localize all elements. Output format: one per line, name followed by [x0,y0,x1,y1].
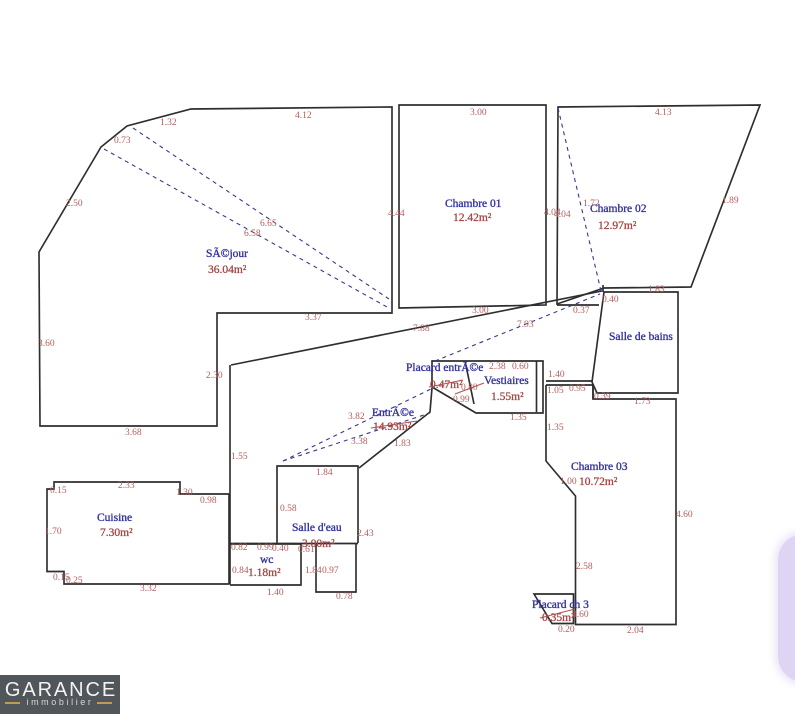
svg-text:1.84: 1.84 [316,468,333,478]
svg-text:4.04: 4.04 [554,210,571,220]
svg-text:1.55m²: 1.55m² [491,391,524,403]
svg-text:2.04: 2.04 [627,626,644,636]
svg-text:1.84: 1.84 [305,566,322,576]
svg-text:0.20: 0.20 [558,625,575,635]
svg-text:1.40: 1.40 [267,588,284,598]
svg-text:EntrÃ©e: EntrÃ©e [372,405,414,419]
svg-text:36.04m²: 36.04m² [208,264,247,276]
svg-text:3.00: 3.00 [470,108,487,118]
svg-text:Chambre 03: Chambre 03 [571,461,628,473]
svg-text:2.33: 2.33 [118,481,135,491]
svg-text:1.35: 1.35 [510,413,527,423]
svg-text:0.73: 0.73 [114,136,131,146]
svg-text:3.60: 3.60 [38,339,55,349]
svg-text:1.32: 1.32 [160,118,177,128]
svg-text:1.30: 1.30 [176,488,193,498]
svg-text:1.83: 1.83 [648,285,665,295]
svg-text:0.95: 0.95 [569,384,586,394]
svg-text:0.40: 0.40 [602,295,619,305]
svg-text:2.58: 2.58 [576,562,593,572]
svg-text:1.05: 1.05 [547,386,564,396]
svg-text:0.39: 0.39 [594,392,611,402]
svg-text:6.58: 6.58 [244,229,261,239]
svg-text:0.37: 0.37 [573,306,590,316]
svg-text:1.35: 1.35 [547,423,564,433]
svg-text:Cuisine: Cuisine [97,512,132,524]
svg-text:7.30m²: 7.30m² [100,527,133,539]
svg-text:1.55: 1.55 [231,452,248,462]
svg-text:0.61: 0.61 [298,545,315,555]
svg-text:12.97m²: 12.97m² [598,220,637,232]
svg-text:0.98: 0.98 [200,496,217,506]
svg-text:Salle d'eau: Salle d'eau [292,522,342,534]
svg-text:2.30: 2.30 [206,371,223,381]
svg-text:6.65: 6.65 [260,219,277,229]
svg-text:4.44: 4.44 [388,209,405,219]
svg-text:0.40: 0.40 [272,544,289,554]
svg-text:3.38: 3.38 [351,437,368,447]
svg-text:Chambre 01: Chambre 01 [445,198,502,210]
svg-text:0.84: 0.84 [232,566,249,576]
svg-text:10.72m²: 10.72m² [579,476,618,488]
svg-text:Vestiaires: Vestiaires [484,375,529,387]
svg-text:0.60: 0.60 [572,610,589,620]
svg-text:2.38: 2.38 [489,362,506,372]
svg-text:1.73: 1.73 [634,397,651,407]
svg-text:1.89: 1.89 [722,196,739,206]
svg-text:1.72: 1.72 [583,199,600,209]
svg-text:0.99: 0.99 [453,395,470,405]
svg-text:SÃ©jour: SÃ©jour [206,246,248,260]
svg-text:4.60: 4.60 [676,510,693,520]
svg-text:3.37: 3.37 [305,313,322,323]
svg-text:1.40: 1.40 [548,370,565,380]
svg-text:1.00: 1.00 [560,477,577,487]
svg-text:3.82: 3.82 [348,412,365,422]
svg-text:0.97: 0.97 [322,566,339,576]
svg-text:3.68: 3.68 [125,428,142,438]
svg-text:0.78: 0.78 [336,592,353,602]
svg-text:2.43: 2.43 [357,529,374,539]
svg-text:3.32: 3.32 [140,584,157,594]
svg-text:Placard entrÃ©e: Placard entrÃ©e [406,360,483,374]
svg-text:3.00: 3.00 [472,306,489,316]
svg-text:1.18m²: 1.18m² [248,567,281,579]
svg-text:0.60: 0.60 [512,362,529,372]
svg-text:0.58: 0.58 [280,504,297,514]
svg-text:0.15: 0.15 [50,486,67,496]
svg-text:4.12: 4.12 [295,111,312,121]
svg-text:1.83: 1.83 [394,439,411,449]
svg-text:12.42m²: 12.42m² [453,212,492,224]
svg-text:7.93: 7.93 [517,320,534,330]
svg-text:2.50: 2.50 [66,199,83,209]
svg-text:wc: wc [260,554,273,566]
svg-text:4.13: 4.13 [655,108,672,118]
svg-text:0.25: 0.25 [66,576,83,586]
svg-text:0.82: 0.82 [231,543,248,553]
svg-text:7.88: 7.88 [413,324,430,334]
svg-text:0.35m²: 0.35m² [542,612,575,624]
svg-text:Salle de bains: Salle de bains [609,331,673,343]
svg-text:1.70: 1.70 [45,527,62,537]
